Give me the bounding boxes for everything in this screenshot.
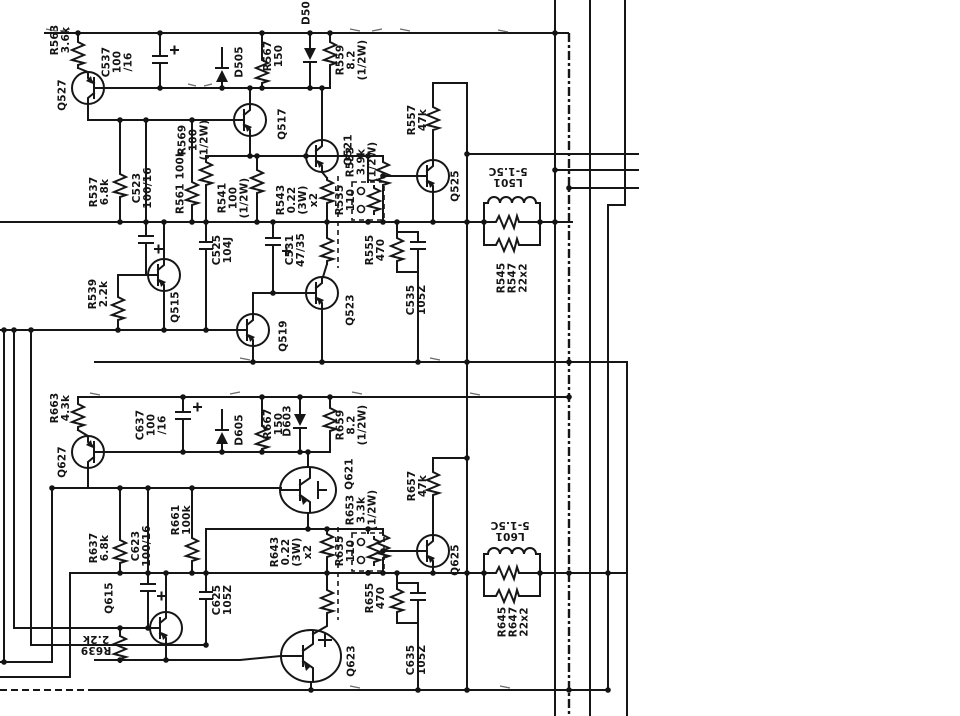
inductor-L601: [484, 548, 540, 602]
resistor-R541: [251, 168, 263, 196]
resistor-R657: [427, 470, 439, 498]
power-rails-right: [555, 0, 627, 716]
resistor-R637: [114, 538, 126, 566]
transistor-Q627: [72, 436, 104, 468]
resistor-R659: [324, 406, 336, 434]
resistor-R653: [377, 533, 389, 561]
inductor-L501: [484, 197, 540, 251]
resistor-R545: [494, 216, 522, 228]
transistor-Q519: [237, 314, 269, 346]
transistor-Q527: [72, 72, 104, 104]
resistor-R557: [427, 105, 439, 133]
resistor-R647: [494, 590, 522, 602]
resistor-R645: [494, 567, 522, 579]
resistor-R643b: [321, 588, 333, 616]
resistor-R537: [114, 172, 126, 200]
resistor-R661: [186, 536, 198, 564]
resistor-R543a: [321, 178, 333, 206]
resistor-R643a: [321, 532, 333, 560]
wiring-channel-1: [0, 33, 638, 690]
wiring-channel-2: [0, 397, 627, 690]
resistor-R559: [324, 40, 336, 68]
resistor-R569: [200, 160, 212, 188]
transistor-Q625: [417, 535, 449, 567]
resistor-R539: [112, 295, 124, 323]
transistor-Q523: [306, 277, 338, 309]
resistor-R663: [72, 402, 84, 430]
transistor-Q621: [280, 467, 336, 513]
transistor-Q515: [148, 259, 180, 291]
transistor-Q615: [150, 612, 182, 644]
thermal-resistor-R635: [352, 533, 384, 571]
resistor-R655: [391, 587, 403, 615]
schematic-drawing: [0, 0, 960, 716]
transistor-Q517: [234, 104, 266, 136]
resistor-R561: [186, 180, 198, 208]
left-wire-bundle: [0, 330, 206, 677]
resistor-R567: [256, 58, 268, 86]
transistor-Q623: [281, 630, 341, 682]
resistor-R563: [72, 40, 84, 68]
resistor-R667: [256, 424, 268, 452]
resistor-R547: [494, 239, 522, 251]
schematic-canvas: R563 3.6kQ527C537 100 /16D505R567 150D50…: [0, 0, 960, 716]
resistor-R543b: [321, 236, 333, 264]
thermal-resistor-R535: [352, 182, 384, 220]
resistor-R555: [391, 236, 403, 264]
transistor-Q525: [417, 160, 449, 192]
